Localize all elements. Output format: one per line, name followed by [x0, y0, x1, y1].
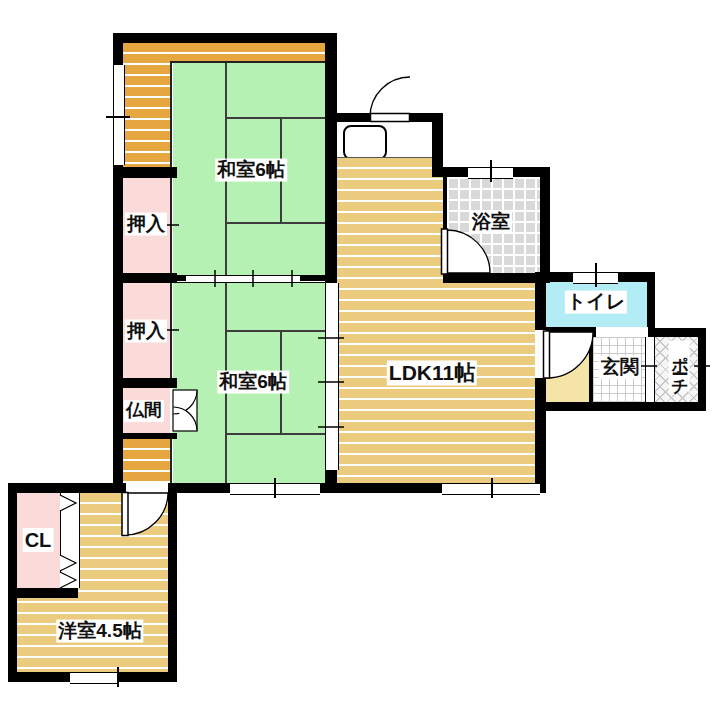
- swing-door-arc-icon: [447, 230, 490, 273]
- label-ldk: LDK11帖: [387, 360, 477, 385]
- label-washitsu-1: 和室6帖: [215, 159, 287, 182]
- label-oshiire-2: 押入: [125, 320, 167, 343]
- label-porch: ポーチ: [669, 341, 690, 392]
- swing-door-leaf-icon: [442, 229, 448, 274]
- label-washitsu-2: 和室6帖: [217, 371, 289, 394]
- label-butsuma: 仏間: [124, 400, 164, 422]
- swing-door-arc-icon: [547, 332, 593, 378]
- label-toilet: トイレ: [565, 291, 627, 314]
- folding-door-chevron-icon: [60, 555, 76, 571]
- label-oshiire-1: 押入: [125, 213, 167, 236]
- label-youshitsu: 洋室4.5帖: [56, 620, 143, 643]
- swing-door-leaf-icon: [544, 331, 550, 378]
- folding-door-chevron-icon: [60, 572, 76, 588]
- swing-door-leaf-icon: [122, 493, 128, 536]
- folding-door-chevron-icon: [60, 495, 76, 511]
- label-genkan: 玄関: [599, 356, 641, 379]
- swing-door-arc-icon: [125, 493, 168, 535]
- swing-door-leaf-icon: [371, 114, 410, 122]
- label-bathroom: 浴室: [470, 211, 512, 234]
- floor-plan: 和室6帖 押入 押入 仏間 和室6帖 LDK11帖 浴室 トイレ 玄関 ポーチ …: [0, 0, 720, 720]
- swing-door-arc-icon: [370, 77, 410, 117]
- label-closet-cl: CL: [23, 528, 54, 552]
